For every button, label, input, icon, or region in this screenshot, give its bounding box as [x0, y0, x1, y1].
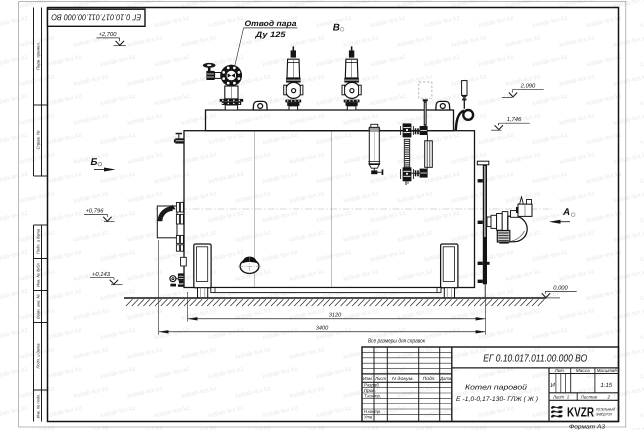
svg-text:kotlab-tex.kz: kotlab-tex.kz [127, 346, 164, 361]
svg-text:kotlab-tex.kz: kotlab-tex.kz [289, 112, 326, 127]
svg-text:kotlab-tex.kz: kotlab-tex.kz [370, 15, 407, 30]
svg-text:kotlab-tex.kz: kotlab-tex.kz [19, 73, 56, 88]
svg-text:kotlab-tex.kz: kotlab-tex.kz [19, 112, 56, 127]
svg-text:kotlab-tex.kz: kotlab-tex.kz [100, 171, 137, 186]
svg-text:kotlab-tex.kz: kotlab-tex.kz [235, 190, 272, 205]
svg-text:kotlab-tex.kz: kotlab-tex.kz [370, 210, 407, 225]
svg-text:kotlab-tex.kz: kotlab-tex.kz [613, 151, 644, 166]
svg-text:kotlab-tex.kz: kotlab-tex.kz [289, 268, 326, 283]
svg-text:kotlab-tex.kz: kotlab-tex.kz [640, 210, 644, 225]
svg-text:+0,796: +0,796 [86, 208, 105, 215]
svg-text:kotlab-tex.kz: kotlab-tex.kz [640, 93, 644, 108]
svg-text:КОТЕЛЬНЫЙ: КОТЕЛЬНЫЙ [596, 406, 615, 411]
svg-text:kotlab-tex.kz: kotlab-tex.kz [262, 327, 299, 342]
svg-text:kotlab-tex.kz: kotlab-tex.kz [424, 54, 461, 69]
svg-text:kotlab-tex.kz: kotlab-tex.kz [181, 385, 218, 400]
svg-text:kotlab-tex.kz: kotlab-tex.kz [0, 54, 28, 69]
svg-text:ЕГ 0.10.017.011.00.000 ВО: ЕГ 0.10.017.011.00.000 ВО [51, 13, 141, 23]
svg-text:kotlab-tex.kz: kotlab-tex.kz [181, 346, 218, 361]
svg-text:kotlab-tex.kz: kotlab-tex.kz [181, 229, 218, 244]
svg-text:kotlab-tex.kz: kotlab-tex.kz [451, 73, 488, 88]
svg-text:0,000: 0,000 [553, 284, 568, 291]
svg-text:kotlab-tex.kz: kotlab-tex.kz [532, 249, 569, 264]
svg-text:kotlab-tex.kz: kotlab-tex.kz [46, 327, 83, 342]
svg-text:1,746: 1,746 [507, 116, 522, 123]
svg-text:kotlab-tex.kz: kotlab-tex.kz [181, 307, 218, 322]
svg-text:kotlab-tex.kz: kotlab-tex.kz [397, 190, 434, 205]
svg-text:kotlab-tex.kz: kotlab-tex.kz [208, 15, 245, 30]
svg-text:kotlab-tex.kz: kotlab-tex.kz [262, 210, 299, 225]
svg-text:kotlab-tex.kz: kotlab-tex.kz [613, 307, 644, 322]
svg-text:ЗАВОД РЭП: ЗАВОД РЭП [596, 413, 612, 417]
svg-text:kotlab-tex.kz: kotlab-tex.kz [289, 151, 326, 166]
svg-text:kotlab-tex.kz: kotlab-tex.kz [586, 327, 623, 342]
svg-text:kotlab-tex.kz: kotlab-tex.kz [640, 132, 644, 147]
svg-text:kotlab-tex.kz: kotlab-tex.kz [73, 346, 110, 361]
svg-text:kotlab-tex.kz: kotlab-tex.kz [451, 34, 488, 49]
svg-text:kotlab-tex.kz: kotlab-tex.kz [73, 307, 110, 322]
svg-text:kotlab-tex.kz: kotlab-tex.kz [262, 171, 299, 186]
svg-text:kotlab-tex.kz: kotlab-tex.kz [181, 34, 218, 49]
svg-text:kotlab-tex.kz: kotlab-tex.kz [559, 307, 596, 322]
svg-text:3400: 3400 [316, 325, 329, 331]
svg-text:kotlab-tex.kz: kotlab-tex.kz [208, 327, 245, 342]
svg-text:kotlab-tex.kz: kotlab-tex.kz [532, 54, 569, 69]
svg-text:kotlab-tex.kz: kotlab-tex.kz [478, 54, 515, 69]
svg-text:Масса: Масса [576, 368, 591, 373]
svg-text:Листов: Листов [580, 395, 598, 400]
svg-text:kotlab-tex.kz: kotlab-tex.kz [532, 171, 569, 186]
svg-text:kotlab-tex.kz: kotlab-tex.kz [586, 288, 623, 303]
svg-text:kotlab-tex.kz: kotlab-tex.kz [451, 229, 488, 244]
svg-text:kotlab-tex.kz: kotlab-tex.kz [316, 405, 353, 420]
svg-text:kotlab-tex.kz: kotlab-tex.kz [0, 73, 1, 88]
svg-text:Лист: Лист [552, 395, 564, 400]
svg-text:kotlab-tex.kz: kotlab-tex.kz [424, 210, 461, 225]
svg-text:kotlab-tex.kz: kotlab-tex.kz [46, 132, 83, 147]
svg-text:kotlab-tex.kz: kotlab-tex.kz [532, 327, 569, 342]
svg-text:kotlab-tex.kz: kotlab-tex.kz [208, 210, 245, 225]
svg-text:Е -1,0-0,17-130- ГЛЖ ( Ж ): Е -1,0-0,17-130- ГЛЖ ( Ж ) [456, 396, 538, 403]
svg-text:kotlab-tex.kz: kotlab-tex.kz [100, 249, 137, 264]
svg-text:kotlab-tex.kz: kotlab-tex.kz [586, 54, 623, 69]
svg-text:kotlab-tex.kz: kotlab-tex.kz [424, 327, 461, 342]
svg-text:Подп.: Подп. [423, 376, 436, 381]
svg-text:kotlab-tex.kz: kotlab-tex.kz [262, 405, 299, 420]
svg-text:Инв. № подл.: Инв. № подл. [36, 394, 41, 419]
svg-text:kotlab-tex.kz: kotlab-tex.kz [613, 268, 644, 283]
svg-text:kotlab-tex.kz: kotlab-tex.kz [370, 54, 407, 69]
svg-text:kotlab-tex.kz: kotlab-tex.kz [0, 268, 1, 283]
svg-text:kotlab-tex.kz: kotlab-tex.kz [0, 15, 28, 30]
svg-text:kotlab-tex.kz: kotlab-tex.kz [586, 171, 623, 186]
svg-text:Масштаб: Масштаб [597, 368, 618, 373]
svg-text:Инв. № дубл.: Инв. № дубл. [36, 262, 41, 287]
svg-text:kotlab-tex.kz: kotlab-tex.kz [73, 112, 110, 127]
svg-text:kotlab-tex.kz: kotlab-tex.kz [613, 229, 644, 244]
svg-text:Разраб.: Разраб. [364, 383, 380, 388]
svg-text:kotlab-tex.kz: kotlab-tex.kz [343, 268, 380, 283]
svg-text:kotlab-tex.kz: kotlab-tex.kz [127, 268, 164, 283]
svg-text:kotlab-tex.kz: kotlab-tex.kz [586, 210, 623, 225]
svg-text:kotlab-tex.kz: kotlab-tex.kz [0, 327, 28, 342]
svg-text:kotlab-tex.kz: kotlab-tex.kz [262, 366, 299, 381]
svg-text:kotlab-tex.kz: kotlab-tex.kz [370, 249, 407, 264]
svg-text:kotlab-tex.kz: kotlab-tex.kz [451, 346, 488, 361]
svg-text:kotlab-tex.kz: kotlab-tex.kz [154, 405, 191, 420]
svg-text:kotlab-tex.kz: kotlab-tex.kz [46, 288, 83, 303]
svg-text:kotlab-tex.kz: kotlab-tex.kz [208, 249, 245, 264]
svg-text:+0,143: +0,143 [92, 271, 111, 278]
svg-text:Утв.: Утв. [364, 415, 373, 420]
svg-text:kotlab-tex.kz: kotlab-tex.kz [0, 249, 28, 264]
svg-text:kotlab-tex.kz: kotlab-tex.kz [613, 346, 644, 361]
svg-text:kotlab-tex.kz: kotlab-tex.kz [640, 366, 644, 381]
svg-text:kotlab-tex.kz: kotlab-tex.kz [100, 288, 137, 303]
svg-text:ЕГ 0.10.017.011.00.000 ВО: ЕГ 0.10.017.011.00.000 ВО [483, 354, 587, 365]
svg-text:Пров.: Пров. [364, 388, 376, 393]
svg-text:kotlab-tex.kz: kotlab-tex.kz [127, 34, 164, 49]
svg-text:kotlab-tex.kz: kotlab-tex.kz [559, 190, 596, 205]
svg-text:kotlab-tex.kz: kotlab-tex.kz [451, 307, 488, 322]
svg-text:Справ. №: Справ. № [36, 130, 41, 149]
svg-text:Н.контр.: Н.контр. [364, 409, 381, 414]
svg-text:kotlab-tex.kz: kotlab-tex.kz [181, 190, 218, 205]
svg-text:kotlab-tex.kz: kotlab-tex.kz [289, 307, 326, 322]
svg-text:kotlab-tex.kz: kotlab-tex.kz [73, 190, 110, 205]
svg-text:kotlab-tex.kz: kotlab-tex.kz [154, 327, 191, 342]
svg-text:kotlab-tex.kz: kotlab-tex.kz [316, 132, 353, 147]
svg-text:2: 2 [606, 395, 610, 400]
svg-text:kotlab-tex.kz: kotlab-tex.kz [73, 385, 110, 400]
svg-text:kotlab-tex.kz: kotlab-tex.kz [586, 132, 623, 147]
svg-text:kotlab-tex.kz: kotlab-tex.kz [46, 249, 83, 264]
svg-text:kotlab-tex.kz: kotlab-tex.kz [127, 307, 164, 322]
svg-text:kotlab-tex.kz: kotlab-tex.kz [0, 385, 1, 400]
svg-text:Лист: Лист [374, 376, 386, 381]
svg-text:kotlab-tex.kz: kotlab-tex.kz [478, 93, 515, 108]
svg-text:kotlab-tex.kz: kotlab-tex.kz [0, 346, 1, 361]
svg-text:kotlab-tex.kz: kotlab-tex.kz [154, 132, 191, 147]
svg-text:kotlab-tex.kz: kotlab-tex.kz [586, 15, 623, 30]
svg-text:kotlab-tex.kz: kotlab-tex.kz [559, 112, 596, 127]
svg-text:Ду 125: Ду 125 [254, 30, 286, 39]
svg-text:kotlab-tex.kz: kotlab-tex.kz [0, 190, 1, 205]
svg-text:N докум.: N докум. [392, 376, 414, 381]
svg-text:kotlab-tex.kz: kotlab-tex.kz [478, 327, 515, 342]
svg-text:kotlab-tex.kz: kotlab-tex.kz [100, 54, 137, 69]
svg-text:kotlab-tex.kz: kotlab-tex.kz [613, 190, 644, 205]
svg-text:kotlab-tex.kz: kotlab-tex.kz [0, 307, 1, 322]
svg-text:kotlab-tex.kz: kotlab-tex.kz [316, 210, 353, 225]
svg-text:kotlab-tex.kz: kotlab-tex.kz [0, 151, 1, 166]
svg-text:kotlab-tex.kz: kotlab-tex.kz [0, 0, 1, 10]
svg-text:kotlab-tex.kz: kotlab-tex.kz [613, 34, 644, 49]
svg-text:kotlab-tex.kz: kotlab-tex.kz [235, 112, 272, 127]
svg-text:kotlab-tex.kz: kotlab-tex.kz [316, 171, 353, 186]
svg-text:kotlab-tex.kz: kotlab-tex.kz [181, 112, 218, 127]
svg-text:kotlab-tex.kz: kotlab-tex.kz [397, 307, 434, 322]
svg-text:kotlab-tex.kz: kotlab-tex.kz [208, 132, 245, 147]
svg-text:Взам. инв. №: Взам. инв. № [36, 293, 41, 318]
svg-text:kotlab-tex.kz: kotlab-tex.kz [0, 132, 28, 147]
svg-text:Изм.: Изм. [363, 376, 373, 381]
svg-text:kotlab-tex.kz: kotlab-tex.kz [559, 34, 596, 49]
svg-text:2,090: 2,090 [520, 83, 536, 90]
svg-text:kotlab-tex.kz: kotlab-tex.kz [0, 112, 1, 127]
svg-text:kotlab-tex.kz: kotlab-tex.kz [640, 249, 644, 264]
svg-text:kotlab-tex.kz: kotlab-tex.kz [424, 171, 461, 186]
svg-text:kotlab-tex.kz: kotlab-tex.kz [0, 366, 28, 381]
svg-text:kotlab-tex.kz: kotlab-tex.kz [532, 132, 569, 147]
svg-text:kotlab-tex.kz: kotlab-tex.kz [46, 54, 83, 69]
svg-text:kotlab-tex.kz: kotlab-tex.kz [586, 93, 623, 108]
svg-text:Подп. и дата: Подп. и дата [36, 343, 41, 369]
svg-text:kotlab-tex.kz: kotlab-tex.kz [262, 132, 299, 147]
svg-text:kotlab-tex.kz: kotlab-tex.kz [343, 190, 380, 205]
svg-text:kotlab-tex.kz: kotlab-tex.kz [397, 229, 434, 244]
svg-text:kotlab-tex.kz: kotlab-tex.kz [235, 385, 272, 400]
svg-text:kotlab-tex.kz: kotlab-tex.kz [100, 327, 137, 342]
svg-text:kotlab-tex.kz: kotlab-tex.kz [397, 268, 434, 283]
svg-text:kotlab-tex.kz: kotlab-tex.kz [154, 54, 191, 69]
svg-text:kotlab-tex.kz: kotlab-tex.kz [640, 327, 644, 342]
svg-text:kotlab-tex.kz: kotlab-tex.kz [100, 132, 137, 147]
svg-text:kotlab-tex.kz: kotlab-tex.kz [127, 112, 164, 127]
svg-text:kotlab-tex.kz: kotlab-tex.kz [289, 34, 326, 49]
svg-text:kotlab-tex.kz: kotlab-tex.kz [0, 405, 28, 420]
svg-text:kotlab-tex.kz: kotlab-tex.kz [73, 229, 110, 244]
svg-text:kotlab-tex.kz: kotlab-tex.kz [100, 366, 137, 381]
svg-text:kotlab-tex.kz: kotlab-tex.kz [343, 34, 380, 49]
svg-text:kotlab-tex.kz: kotlab-tex.kz [316, 249, 353, 264]
svg-text:kotlab-tex.kz: kotlab-tex.kz [46, 366, 83, 381]
svg-text:KVZR: KVZR [567, 404, 594, 419]
svg-text:kotlab-tex.kz: kotlab-tex.kz [289, 385, 326, 400]
svg-text:kotlab-tex.kz: kotlab-tex.kz [532, 405, 569, 420]
svg-text:kotlab-tex.kz: kotlab-tex.kz [505, 268, 542, 283]
svg-text:kotlab-tex.kz: kotlab-tex.kz [0, 93, 28, 108]
svg-text:kotlab-tex.kz: kotlab-tex.kz [640, 171, 644, 186]
svg-text:kotlab-tex.kz: kotlab-tex.kz [127, 73, 164, 88]
svg-text:kotlab-tex.kz: kotlab-tex.kz [0, 210, 28, 225]
svg-text:В: В [333, 23, 340, 34]
svg-text:kotlab-tex.kz: kotlab-tex.kz [397, 112, 434, 127]
svg-text:kotlab-tex.kz: kotlab-tex.kz [559, 268, 596, 283]
svg-text:kotlab-tex.kz: kotlab-tex.kz [0, 34, 1, 49]
svg-text:И: И [550, 382, 555, 389]
svg-text:Формат А3: Формат А3 [569, 424, 606, 430]
svg-text:kotlab-tex.kz: kotlab-tex.kz [100, 93, 137, 108]
svg-text:Перв. примен.: Перв. примен. [36, 42, 41, 70]
svg-text:kotlab-tex.kz: kotlab-tex.kz [154, 171, 191, 186]
svg-text:kotlab-tex.kz: kotlab-tex.kz [532, 15, 569, 30]
svg-text:kotlab-tex.kz: kotlab-tex.kz [208, 171, 245, 186]
svg-text:kotlab-tex.kz: kotlab-tex.kz [505, 34, 542, 49]
svg-text:kotlab-tex.kz: kotlab-tex.kz [424, 15, 461, 30]
svg-text:kotlab-tex.kz: kotlab-tex.kz [559, 151, 596, 166]
svg-text:kotlab-tex.kz: kotlab-tex.kz [289, 346, 326, 361]
svg-text:kotlab-tex.kz: kotlab-tex.kz [478, 15, 515, 30]
svg-text:kotlab-tex.kz: kotlab-tex.kz [640, 405, 644, 420]
svg-text:kotlab-tex.kz: kotlab-tex.kz [127, 385, 164, 400]
svg-text:Дата: Дата [439, 376, 451, 381]
svg-text:Т.контр.: Т.контр. [364, 393, 381, 398]
svg-text:А: А [562, 207, 570, 218]
svg-text:Котел паровой: Котел паровой [465, 383, 527, 392]
svg-text:Все размеры для справок: Все размеры для справок [368, 337, 425, 344]
svg-text:kotlab-tex.kz: kotlab-tex.kz [208, 405, 245, 420]
svg-text:kotlab-tex.kz: kotlab-tex.kz [316, 366, 353, 381]
svg-text:kotlab-tex.kz: kotlab-tex.kz [46, 210, 83, 225]
svg-text:kotlab-tex.kz: kotlab-tex.kz [343, 307, 380, 322]
svg-text:kotlab-tex.kz: kotlab-tex.kz [19, 190, 56, 205]
svg-text:kotlab-tex.kz: kotlab-tex.kz [127, 151, 164, 166]
svg-text:kotlab-tex.kz: kotlab-tex.kz [478, 132, 515, 147]
svg-text:kotlab-tex.kz: kotlab-tex.kz [613, 112, 644, 127]
svg-text:kotlab-tex.kz: kotlab-tex.kz [424, 405, 461, 420]
svg-text:kotlab-tex.kz: kotlab-tex.kz [100, 405, 137, 420]
svg-text:kotlab-tex.kz: kotlab-tex.kz [154, 15, 191, 30]
svg-text:Отвод пара: Отвод пара [245, 19, 298, 28]
svg-text:kotlab-tex.kz: kotlab-tex.kz [262, 249, 299, 264]
svg-text:kotlab-tex.kz: kotlab-tex.kz [289, 229, 326, 244]
svg-text:1:15: 1:15 [600, 382, 612, 389]
svg-text:kotlab-tex.kz: kotlab-tex.kz [505, 307, 542, 322]
svg-text:kotlab-tex.kz: kotlab-tex.kz [532, 93, 569, 108]
svg-text:kotlab-tex.kz: kotlab-tex.kz [46, 171, 83, 186]
svg-text:kotlab-tex.kz: kotlab-tex.kz [0, 229, 1, 244]
svg-text:kotlab-tex.kz: kotlab-tex.kz [559, 229, 596, 244]
svg-text:kotlab-tex.kz: kotlab-tex.kz [397, 346, 434, 361]
svg-text:kotlab-tex.kz: kotlab-tex.kz [73, 73, 110, 88]
svg-text:kotlab-tex.kz: kotlab-tex.kz [640, 288, 644, 303]
svg-text:kotlab-tex.kz: kotlab-tex.kz [235, 151, 272, 166]
svg-text:kotlab-tex.kz: kotlab-tex.kz [0, 171, 28, 186]
svg-text:kotlab-tex.kz: kotlab-tex.kz [640, 15, 644, 30]
svg-text:kotlab-tex.kz: kotlab-tex.kz [235, 229, 272, 244]
svg-text:kotlab-tex.kz: kotlab-tex.kz [586, 249, 623, 264]
svg-text:kotlab-tex.kz: kotlab-tex.kz [613, 73, 644, 88]
svg-text:kotlab-tex.kz: kotlab-tex.kz [127, 190, 164, 205]
svg-text:kotlab-tex.kz: kotlab-tex.kz [235, 307, 272, 322]
svg-text:kotlab-tex.kz: kotlab-tex.kz [0, 288, 28, 303]
svg-text:kotlab-tex.kz: kotlab-tex.kz [0, 424, 1, 430]
svg-text:Подп. и дата: Подп. и дата [36, 228, 41, 254]
svg-text:kotlab-tex.kz: kotlab-tex.kz [640, 54, 644, 69]
svg-text:kotlab-tex.kz: kotlab-tex.kz [451, 190, 488, 205]
svg-text:kotlab-tex.kz: kotlab-tex.kz [505, 151, 542, 166]
svg-text:kotlab-tex.kz: kotlab-tex.kz [154, 366, 191, 381]
svg-text:kotlab-tex.kz: kotlab-tex.kz [19, 151, 56, 166]
svg-text:kotlab-tex.kz: kotlab-tex.kz [397, 34, 434, 49]
svg-text:kotlab-tex.kz: kotlab-tex.kz [397, 73, 434, 88]
svg-text:kotlab-tex.kz: kotlab-tex.kz [478, 405, 515, 420]
svg-text:kotlab-tex.kz: kotlab-tex.kz [181, 151, 218, 166]
svg-text:kotlab-tex.kz: kotlab-tex.kz [235, 346, 272, 361]
svg-text:kotlab-tex.kz: kotlab-tex.kz [370, 93, 407, 108]
svg-text:+2,700: +2,700 [99, 31, 118, 38]
svg-text:kotlab-tex.kz: kotlab-tex.kz [397, 385, 434, 400]
svg-text:kotlab-tex.kz: kotlab-tex.kz [154, 93, 191, 108]
svg-text:Лит.: Лит. [554, 368, 565, 373]
svg-text:kotlab-tex.kz: kotlab-tex.kz [208, 366, 245, 381]
svg-text:kotlab-tex.kz: kotlab-tex.kz [100, 210, 137, 225]
svg-text:kotlab-tex.kz: kotlab-tex.kz [289, 190, 326, 205]
svg-text:kotlab-tex.kz: kotlab-tex.kz [343, 229, 380, 244]
svg-text:3120: 3120 [329, 312, 342, 318]
svg-text:Б: Б [91, 157, 98, 168]
svg-text:kotlab-tex.kz: kotlab-tex.kz [46, 93, 83, 108]
svg-text:kotlab-tex.kz: kotlab-tex.kz [46, 405, 83, 420]
svg-text:kotlab-tex.kz: kotlab-tex.kz [559, 73, 596, 88]
